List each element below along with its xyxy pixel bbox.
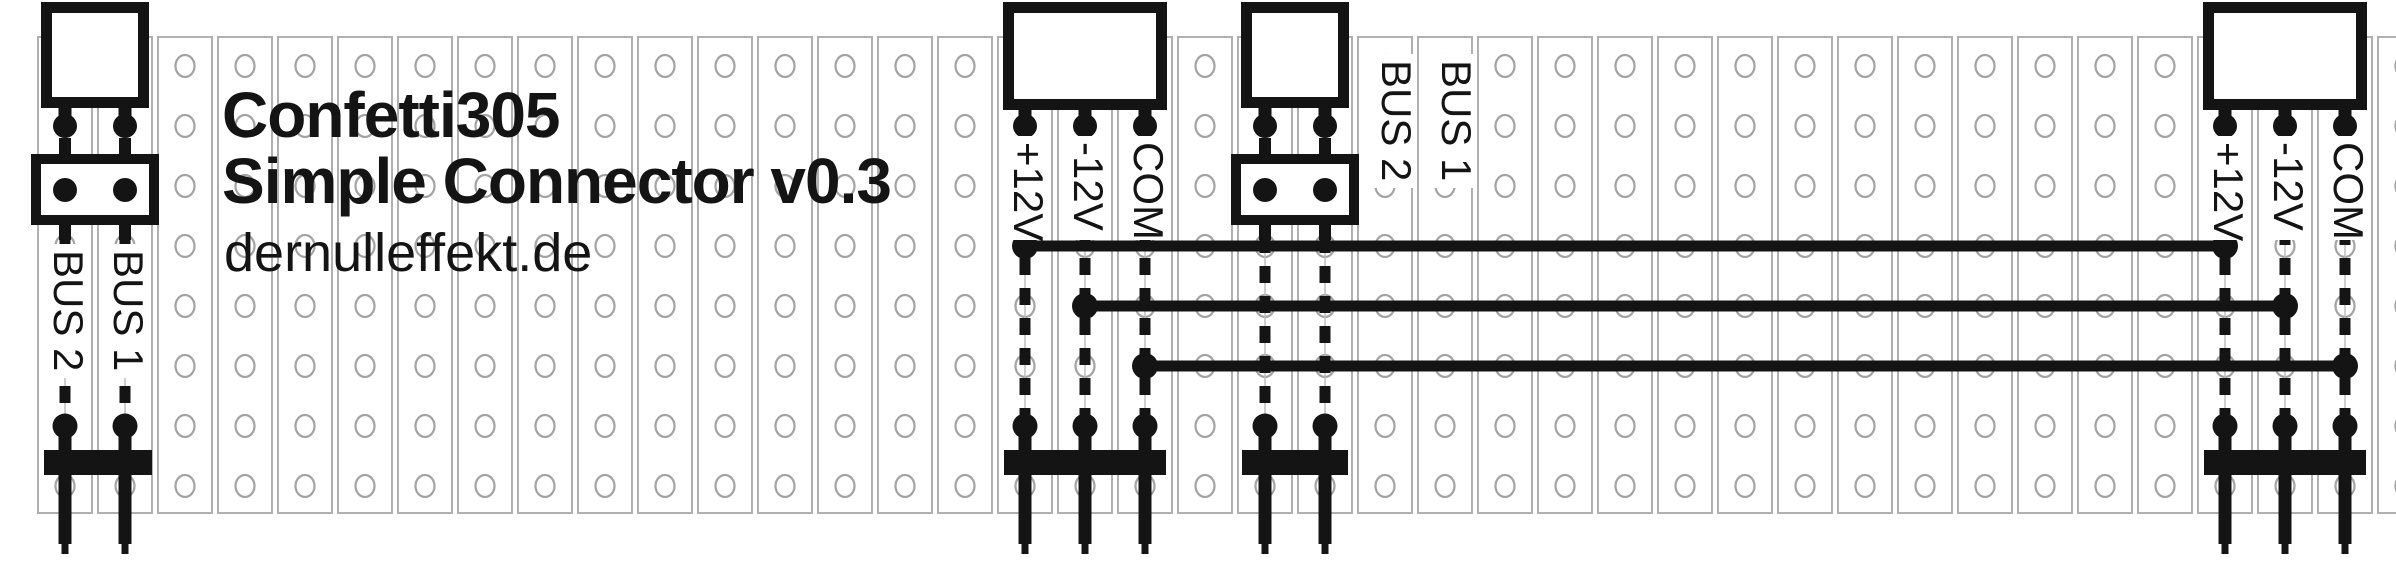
hole xyxy=(1916,55,1935,77)
hole xyxy=(236,415,255,437)
hole xyxy=(1796,175,1815,197)
hole xyxy=(956,295,975,317)
hole xyxy=(1796,115,1815,137)
hole xyxy=(176,295,195,317)
hole xyxy=(1856,115,1875,137)
hole xyxy=(416,475,435,497)
hole xyxy=(1736,115,1755,137)
strip xyxy=(698,37,752,513)
hole xyxy=(956,115,975,137)
strip xyxy=(1898,37,1952,513)
hole xyxy=(1856,475,1875,497)
bus-connector-mid-body xyxy=(1247,8,1344,103)
pin-header-bar xyxy=(1004,450,1166,475)
pin xyxy=(1079,426,1092,544)
hole xyxy=(596,415,615,437)
hole xyxy=(356,415,375,437)
hole xyxy=(656,55,675,77)
hole xyxy=(476,295,495,317)
strip xyxy=(878,37,932,513)
pin-tip xyxy=(1022,538,1029,554)
label-com-out: COM xyxy=(2322,136,2372,240)
pin-tip xyxy=(2222,538,2229,554)
hole xyxy=(596,235,615,257)
pin xyxy=(1139,426,1152,544)
hole xyxy=(1856,175,1875,197)
hole xyxy=(1916,415,1935,437)
label-minus12-in: -12V xyxy=(1062,136,1112,240)
socket-pin-dot xyxy=(113,178,137,202)
page-title: Confetti305 xyxy=(222,79,560,151)
hole xyxy=(716,355,735,377)
hole xyxy=(776,355,795,377)
strip xyxy=(638,37,692,513)
pin-tip xyxy=(1322,538,1329,554)
hole xyxy=(1856,55,1875,77)
hole xyxy=(1976,115,1995,137)
hole xyxy=(416,55,435,77)
hole xyxy=(596,115,615,137)
hole xyxy=(2096,175,2115,197)
hole xyxy=(236,355,255,377)
hole xyxy=(2096,415,2115,437)
solder-dot xyxy=(2213,114,2237,138)
bus1-left-label: BUS 1 xyxy=(105,250,152,371)
pin xyxy=(1319,426,1332,544)
solder-dot xyxy=(1073,114,1097,138)
hole xyxy=(896,115,915,137)
hole xyxy=(2036,115,2055,137)
pin xyxy=(119,426,132,544)
hole xyxy=(1196,115,1215,137)
hole xyxy=(176,175,195,197)
hole xyxy=(656,355,675,377)
pin-tip xyxy=(1262,538,1269,554)
hole xyxy=(296,415,315,437)
strip xyxy=(2378,37,2396,513)
hole xyxy=(956,355,975,377)
hole xyxy=(956,415,975,437)
hole xyxy=(2096,475,2115,497)
strip xyxy=(758,37,812,513)
solder-dot xyxy=(53,114,77,138)
hole xyxy=(836,295,855,317)
hole xyxy=(956,175,975,197)
solder-dot xyxy=(2273,114,2297,138)
hole xyxy=(716,235,735,257)
plus12-out-label: +12V xyxy=(2205,142,2252,241)
strip xyxy=(1658,37,1712,513)
pin xyxy=(1259,426,1272,544)
hole xyxy=(1496,175,1515,197)
hole xyxy=(1796,55,1815,77)
hole xyxy=(596,55,615,77)
hole xyxy=(1556,475,1575,497)
hole xyxy=(596,475,615,497)
hole xyxy=(1556,175,1575,197)
bus1-mid-label: BUS 1 xyxy=(1433,60,1480,181)
hole xyxy=(1676,55,1695,77)
strip xyxy=(2138,37,2192,513)
hole xyxy=(1496,55,1515,77)
pin-tip xyxy=(122,538,129,554)
hole xyxy=(1616,55,1635,77)
hole xyxy=(956,475,975,497)
hole xyxy=(1556,415,1575,437)
label-bus1-mid: BUS 1 xyxy=(1430,54,1480,188)
hole xyxy=(1616,475,1635,497)
hole xyxy=(416,295,435,317)
hole xyxy=(656,295,675,317)
hole xyxy=(1916,175,1935,197)
hole xyxy=(896,415,915,437)
hole xyxy=(416,415,435,437)
hole xyxy=(356,355,375,377)
socket-pin-dot xyxy=(1253,178,1277,202)
hole xyxy=(176,415,195,437)
hole xyxy=(536,415,555,437)
hole xyxy=(236,55,255,77)
hole xyxy=(2096,55,2115,77)
hole xyxy=(476,55,495,77)
label-minus12-out: -12V xyxy=(2262,136,2312,240)
pin xyxy=(2219,426,2232,544)
hole xyxy=(1376,415,1395,437)
hole xyxy=(656,415,675,437)
power-connector-in-body xyxy=(1009,8,1162,105)
power-connector-out-body xyxy=(2209,8,2362,105)
pin xyxy=(59,426,72,544)
pin xyxy=(2339,426,2352,544)
pin xyxy=(2279,426,2292,544)
hole xyxy=(2036,415,2055,437)
hole xyxy=(1916,115,1935,137)
hole xyxy=(836,115,855,137)
hole xyxy=(536,55,555,77)
hole xyxy=(1196,415,1215,437)
hole xyxy=(836,235,855,257)
hole xyxy=(836,415,855,437)
hole xyxy=(536,295,555,317)
hole xyxy=(956,55,975,77)
hole xyxy=(176,475,195,497)
hole xyxy=(176,235,195,257)
hole xyxy=(836,355,855,377)
junction-dot xyxy=(2332,353,2358,379)
pin-header-bar xyxy=(44,450,152,475)
pin-header-bar xyxy=(1242,450,1348,475)
hole xyxy=(1676,175,1695,197)
hole xyxy=(716,475,735,497)
hole xyxy=(896,235,915,257)
hole xyxy=(1796,475,1815,497)
hole xyxy=(1496,475,1515,497)
label-bus1-left: BUS 1 xyxy=(102,244,152,378)
solder-dot xyxy=(1013,114,1037,138)
hole xyxy=(716,295,735,317)
socket-pin-dot xyxy=(53,178,77,202)
junction-dot xyxy=(2272,293,2298,319)
hole xyxy=(476,355,495,377)
bus2-mid-label: BUS 2 xyxy=(1373,60,1420,181)
hole xyxy=(296,55,315,77)
com-in-label: COM xyxy=(1125,142,1172,240)
hole xyxy=(1496,415,1515,437)
hole xyxy=(236,295,255,317)
strip xyxy=(1958,37,2012,513)
hole xyxy=(896,295,915,317)
hole xyxy=(1736,175,1755,197)
label-bus2-mid: BUS 2 xyxy=(1370,54,1420,188)
strip xyxy=(1778,37,1832,513)
hole xyxy=(836,55,855,77)
label-bus2-left: BUS 2 xyxy=(42,244,92,378)
hole xyxy=(776,415,795,437)
hole xyxy=(2156,175,2175,197)
hole xyxy=(656,475,675,497)
strip xyxy=(1178,37,1232,513)
hole xyxy=(2036,475,2055,497)
hole xyxy=(1736,415,1755,437)
solder-dot xyxy=(1313,114,1337,138)
plus12-in-label: +12V xyxy=(1005,142,1052,241)
hole xyxy=(776,235,795,257)
hole xyxy=(1736,55,1755,77)
hole xyxy=(776,475,795,497)
hole xyxy=(416,355,435,377)
pin-tip xyxy=(1082,538,1089,554)
pin-tip xyxy=(62,538,69,554)
hole xyxy=(1376,475,1395,497)
strip xyxy=(158,37,212,513)
hole xyxy=(1796,415,1815,437)
hole xyxy=(1976,175,1995,197)
strip xyxy=(1838,37,1892,513)
solder-dot xyxy=(1133,114,1157,138)
hole xyxy=(896,175,915,197)
hole xyxy=(1616,415,1635,437)
strip xyxy=(1538,37,1592,513)
hole xyxy=(896,475,915,497)
hole xyxy=(1616,175,1635,197)
hole xyxy=(776,55,795,77)
com-out-label: COM xyxy=(2325,142,2372,240)
label-plus12-in: +12V xyxy=(1002,136,1052,241)
junction-dot xyxy=(1072,293,1098,319)
hole xyxy=(1436,475,1455,497)
pin-tip xyxy=(2342,538,2349,554)
hole xyxy=(1556,55,1575,77)
hole xyxy=(1916,475,1935,497)
strip xyxy=(1598,37,1652,513)
solder-dot xyxy=(113,114,137,138)
strip xyxy=(2018,37,2072,513)
bus-connector-left-body xyxy=(47,8,144,103)
hole xyxy=(2036,55,2055,77)
hole xyxy=(1196,55,1215,77)
hole xyxy=(1616,115,1635,137)
hole xyxy=(2156,115,2175,137)
hole xyxy=(356,475,375,497)
hole xyxy=(176,355,195,377)
hole xyxy=(356,55,375,77)
page-subtitle: Simple Connector v0.3 xyxy=(222,145,891,217)
hole xyxy=(536,355,555,377)
hole xyxy=(236,475,255,497)
hole xyxy=(596,355,615,377)
hole xyxy=(956,235,975,257)
hole xyxy=(716,55,735,77)
junction-dot xyxy=(1132,353,1158,379)
hole xyxy=(1676,475,1695,497)
hole xyxy=(1196,475,1215,497)
pin-header-bar xyxy=(2204,450,2366,475)
hole xyxy=(2156,55,2175,77)
hole xyxy=(176,115,195,137)
hole xyxy=(296,295,315,317)
hole xyxy=(476,415,495,437)
hole xyxy=(776,295,795,317)
hole xyxy=(656,115,675,137)
hole xyxy=(1496,115,1515,137)
hole xyxy=(176,55,195,77)
label-plus12-out: +12V xyxy=(2202,136,2252,241)
pin-tip xyxy=(1142,538,1149,554)
solder-dot xyxy=(2333,114,2357,138)
hole xyxy=(1736,475,1755,497)
stripboard-diagram: BUS 2 BUS 1 +12V -12V COM BUS 2 BUS 1 xyxy=(0,0,2396,586)
strip xyxy=(1478,37,1532,513)
hole xyxy=(536,475,555,497)
diagram-svg: BUS 2 BUS 1 +12V -12V COM BUS 2 BUS 1 xyxy=(0,0,2396,586)
label-com-in: COM xyxy=(1122,136,1172,240)
hole xyxy=(1676,415,1695,437)
hole xyxy=(896,355,915,377)
strip xyxy=(938,37,992,513)
strip xyxy=(818,37,872,513)
hole xyxy=(1976,415,1995,437)
hole xyxy=(716,115,735,137)
hole xyxy=(1556,115,1575,137)
hole xyxy=(896,55,915,77)
hole xyxy=(1976,475,1995,497)
hole xyxy=(716,415,735,437)
hole xyxy=(296,355,315,377)
hole xyxy=(836,475,855,497)
strip xyxy=(2078,37,2132,513)
hole xyxy=(656,235,675,257)
strip xyxy=(1718,37,1772,513)
minus12-in-label: -12V xyxy=(1065,142,1112,231)
website-text: dernulleffekt.de xyxy=(224,223,592,283)
hole xyxy=(1196,175,1215,197)
hole xyxy=(2156,475,2175,497)
hole xyxy=(2096,115,2115,137)
hole xyxy=(2156,415,2175,437)
socket-pin-dot xyxy=(1313,178,1337,202)
pin xyxy=(1019,426,1032,544)
bus2-left-label: BUS 2 xyxy=(45,250,92,371)
hole xyxy=(1976,55,1995,77)
hole xyxy=(1676,115,1695,137)
hole xyxy=(776,115,795,137)
pin-tip xyxy=(2282,538,2289,554)
hole xyxy=(356,295,375,317)
minus12-out-label: -12V xyxy=(2265,142,2312,231)
hole xyxy=(1436,415,1455,437)
hole xyxy=(596,295,615,317)
solder-dot xyxy=(1253,114,1277,138)
hole xyxy=(476,475,495,497)
hole xyxy=(1856,415,1875,437)
hole xyxy=(296,475,315,497)
hole xyxy=(2036,175,2055,197)
